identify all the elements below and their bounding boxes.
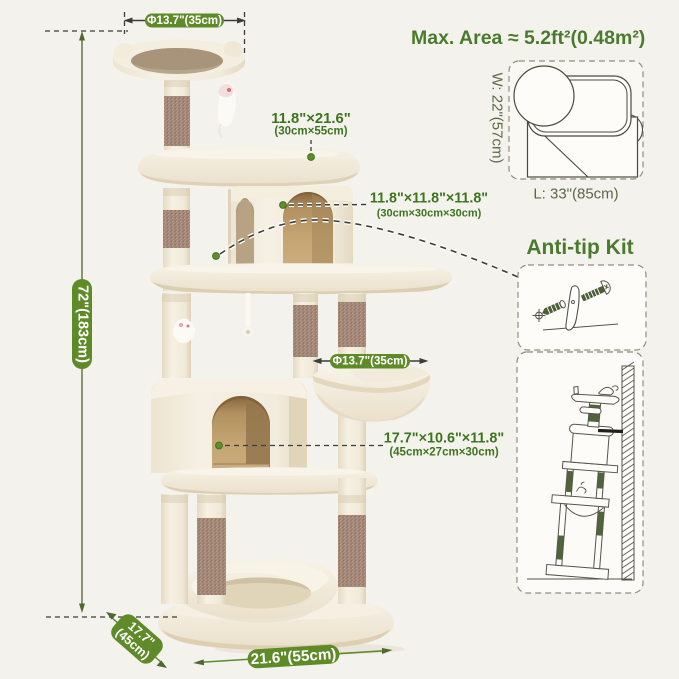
- svg-text:L: 33"(85cm): L: 33"(85cm): [533, 186, 618, 203]
- svg-text:Max. Area ≈ 5.2ft²(0.48m²): Max. Area ≈ 5.2ft²(0.48m²): [411, 27, 645, 49]
- svg-text:72"(183cm): 72"(183cm): [75, 285, 91, 363]
- svg-text:(30cm×55cm): (30cm×55cm): [274, 126, 347, 138]
- svg-text:17.7"×10.6"×11.8": 17.7"×10.6"×11.8": [384, 431, 505, 447]
- svg-text:(45cm×27cm×30cm): (45cm×27cm×30cm): [389, 447, 498, 459]
- svg-text:Anti-tip Kit: Anti-tip Kit: [526, 236, 633, 259]
- svg-text:(30cm×30cm×30cm): (30cm×30cm×30cm): [377, 208, 482, 220]
- svg-text:Φ13.7"(35cm): Φ13.7"(35cm): [147, 14, 222, 27]
- svg-text:11.8"×11.8"×11.8": 11.8"×11.8"×11.8": [370, 191, 488, 207]
- svg-text:Φ13.7"(35cm): Φ13.7"(35cm): [333, 355, 408, 368]
- svg-text:W: 22"(57cm): W: 22"(57cm): [489, 73, 506, 164]
